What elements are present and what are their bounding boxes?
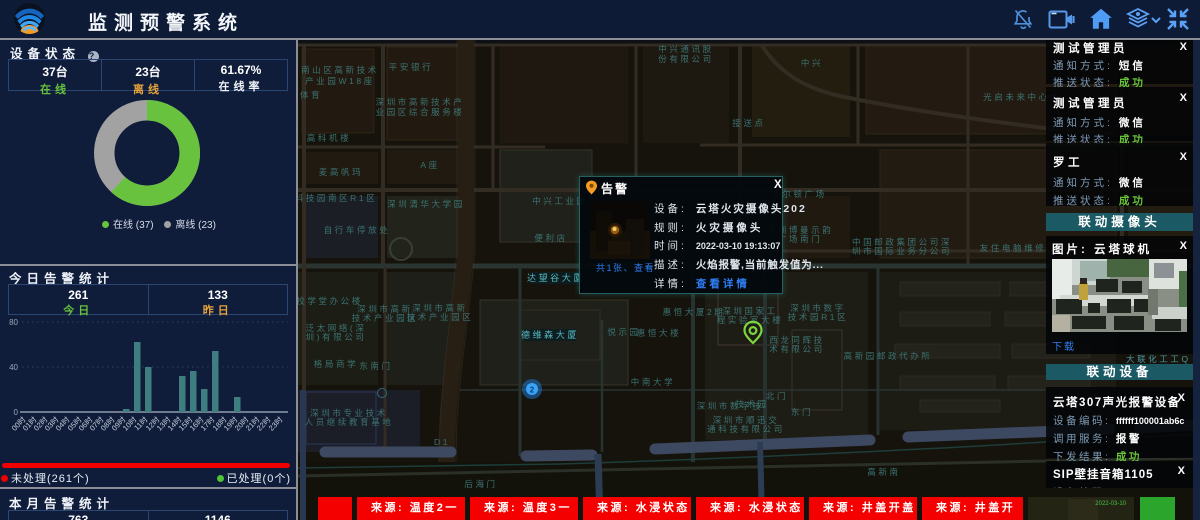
svg-text:深圳清华大学园: 深圳清华大学园 (387, 199, 465, 209)
svg-text:惠恒大楼: 惠恒大楼 (637, 328, 681, 338)
svg-text:中兴通讯股: 中兴通讯股 (658, 44, 714, 54)
svg-text:产业园W18座: 产业园W18座 (305, 76, 375, 86)
svg-text:圳市国际业务分公司: 圳市国际业务分公司 (852, 246, 952, 256)
svg-text:40: 40 (9, 363, 18, 372)
svg-text:高校学堂办公楼: 高校学堂办公楼 (298, 296, 363, 306)
svg-text:高新园邮政代办所: 高新园邮政代办所 (844, 351, 933, 361)
svg-text:德维森大厦: 德维森大厦 (521, 329, 579, 340)
svg-text:80: 80 (9, 318, 18, 327)
svg-text:北门: 北门 (766, 391, 788, 401)
svg-text:2: 2 (530, 386, 535, 395)
svg-text:圳)有限公司: 圳)有限公司 (306, 332, 367, 342)
svg-text:D1: D1 (434, 437, 450, 447)
svg-text:便利店: 便利店 (534, 233, 567, 243)
svg-text:A座: A座 (420, 160, 439, 170)
svg-text:0: 0 (14, 408, 19, 417)
svg-text:东门: 东门 (791, 407, 813, 417)
svg-text:技术产业园区: 技术产业园区 (407, 312, 474, 322)
svg-text:23时: 23时 (266, 414, 285, 433)
svg-text:高新南: 高新南 (867, 467, 900, 477)
svg-text:技术园R1区: 技术园R1区 (788, 312, 848, 322)
svg-text:份有限公司: 份有限公司 (658, 54, 714, 64)
svg-text:东南门: 东南门 (359, 361, 392, 371)
svg-text:接送点: 接送点 (732, 118, 765, 128)
svg-text:深圳市高新技术产: 深圳市高新技术产 (376, 97, 465, 107)
svg-text:麦高帆玛: 麦高帆玛 (319, 167, 363, 177)
svg-text:术有限公司: 术有限公司 (769, 344, 825, 354)
svg-text:中南大学: 中南大学 (631, 377, 675, 387)
svg-text:高科机楼: 高科机楼 (307, 133, 351, 143)
svg-text:平安银行: 平安银行 (389, 62, 433, 72)
svg-text:科技园南区R1区: 科技园南区R1区 (298, 193, 377, 203)
svg-text:南山区高新技术: 南山区高新技术 (301, 65, 379, 75)
svg-text:通科技有限公司: 通科技有限公司 (707, 424, 785, 434)
svg-text:人员继续教育基地: 人员继续教育基地 (305, 417, 394, 427)
svg-text:2022-03-10: 2022-03-10 (1095, 501, 1126, 507)
svg-text:后海门: 后海门 (464, 479, 497, 489)
svg-text:悦示园: 悦示园 (607, 327, 640, 337)
svg-text:大联化工工Q: 大联化工工Q (1126, 354, 1191, 364)
svg-text:友住电脑维修: 友住电脑维修 (980, 243, 1047, 253)
svg-text:达望谷大厦: 达望谷大厦 (527, 272, 585, 283)
svg-text:技术园: 技术园 (735, 399, 768, 409)
svg-text:业园区综合服务楼: 业园区综合服务楼 (376, 107, 465, 117)
svg-text:中兴: 中兴 (801, 58, 823, 68)
svg-text:程实验室大楼: 程实验室大楼 (717, 315, 784, 325)
svg-text:自行车停放处: 自行车停放处 (324, 225, 391, 235)
svg-text:体育: 体育 (300, 90, 322, 100)
svg-text:格局商学: 格局商学 (314, 359, 358, 369)
